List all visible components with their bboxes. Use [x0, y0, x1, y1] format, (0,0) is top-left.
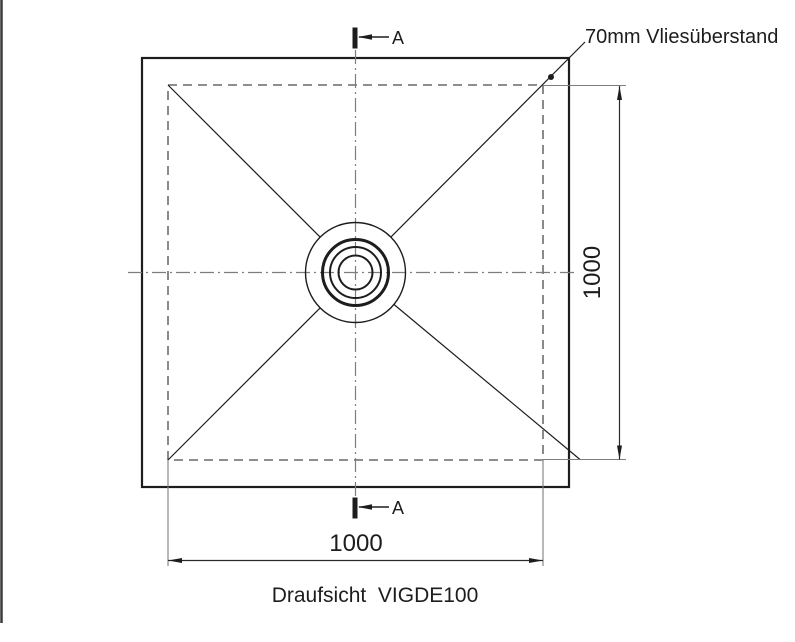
- section-cut-bar-icon: [353, 498, 358, 519]
- section-label-bottom: A: [392, 498, 404, 518]
- section-arrow-head-icon: [358, 504, 372, 510]
- slope-diagonal-bottom-left: [168, 308, 320, 460]
- dimension-width-value: 1000: [329, 530, 382, 557]
- technical-drawing-page: A A 1000 1000 70mm Vliesüber: [0, 0, 795, 642]
- section-arrow-head-icon: [358, 34, 372, 40]
- drawing-canvas: A A 1000 1000 70mm Vliesüber: [0, 0, 795, 642]
- dimension-arrow-up-icon: [617, 86, 622, 100]
- slope-diagonal-bottom-right: [394, 305, 580, 460]
- drawing-caption: Draufsicht VIGDE100: [272, 584, 479, 607]
- section-cut-bar-icon: [353, 28, 358, 49]
- leader-dot: [548, 74, 554, 80]
- fleece-annotation-label: 70mm Vliesüberstand: [585, 26, 778, 48]
- section-marker-bottom: A: [353, 498, 405, 519]
- section-marker-top: A: [353, 28, 405, 49]
- section-label-top: A: [392, 28, 404, 48]
- dimension-arrow-down-icon: [617, 446, 622, 460]
- slope-diagonal-top-left: [168, 85, 320, 237]
- dimension-height-value: 1000: [579, 246, 606, 299]
- slope-diagonal-top-right-leader: [391, 42, 585, 237]
- dimension-arrow-left-icon: [168, 558, 182, 563]
- dimension-arrow-right-icon: [529, 558, 543, 563]
